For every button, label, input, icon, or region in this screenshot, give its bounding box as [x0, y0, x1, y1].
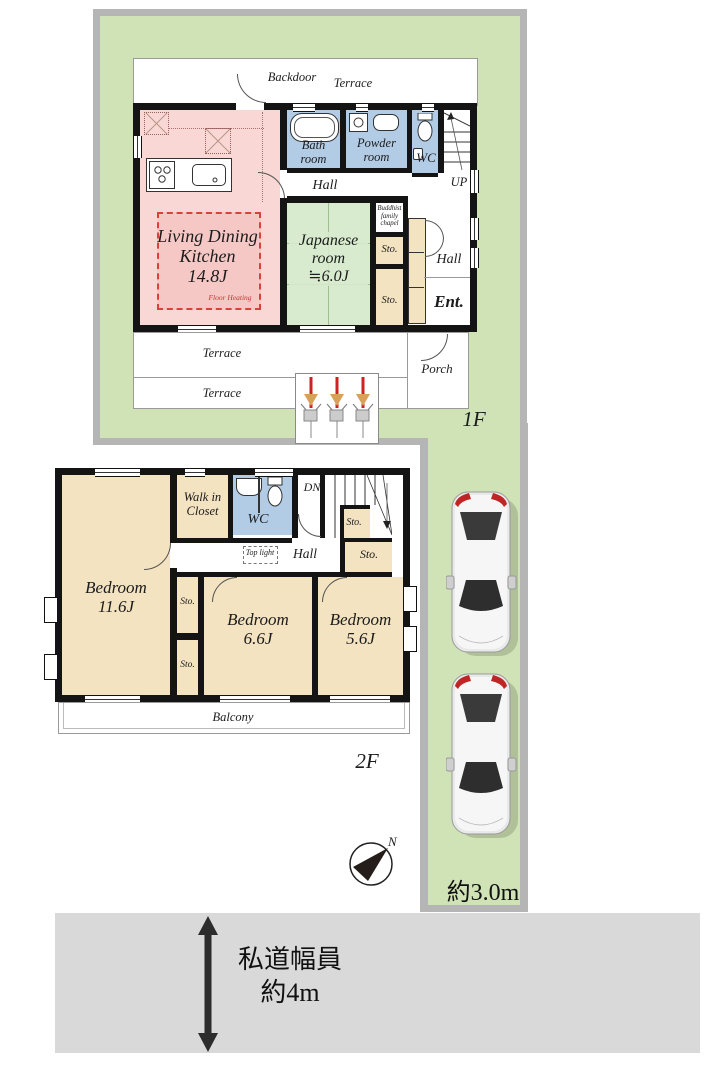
sink-icon	[192, 164, 226, 186]
room-bedroom1-label: Bedroom 11.6J	[70, 578, 162, 616]
wall	[280, 110, 287, 170]
floor-plan-page: 私道幅員 約4m 約3.0m Backdoor Terrace Living D…	[0, 0, 712, 1071]
wall	[340, 542, 345, 572]
room-bedroom2-name: Bedroom	[212, 610, 304, 629]
toilet-icon-2f	[266, 477, 284, 509]
hall-ent-divider	[424, 277, 470, 278]
room-bedroom3-size: 5.6J	[318, 629, 403, 648]
wall	[376, 264, 403, 269]
compass-icon: N	[345, 832, 403, 890]
bay-window	[403, 626, 417, 652]
window-mark	[470, 248, 479, 268]
bay-window	[44, 654, 58, 680]
stove-icon	[149, 161, 175, 189]
car-icon	[446, 670, 520, 842]
storage-2f-right-label: Sto.	[351, 548, 387, 561]
wall	[170, 568, 177, 695]
floor-heating-label: Floor Heating	[203, 294, 257, 302]
storage-1f-a-label: Sto.	[376, 244, 403, 256]
window-mark	[133, 136, 142, 158]
hall-closet-divider	[408, 287, 424, 288]
backdoor-opening	[236, 103, 264, 110]
wall	[412, 173, 438, 177]
window-mark	[356, 103, 368, 112]
storage-2f-b-label: Sto.	[175, 660, 200, 671]
wall	[177, 572, 392, 577]
terrace-mid	[133, 332, 409, 379]
wall	[340, 110, 346, 168]
room-bedroom1-size: 11.6J	[70, 597, 162, 616]
road-caption: 私道幅員 約4m	[195, 944, 385, 1009]
storage-1f-b-label: Sto.	[376, 295, 403, 307]
window-mark	[470, 170, 479, 193]
buddhist-chapel-label: Buddhist family chapel	[376, 205, 403, 228]
stairs-1f	[444, 110, 470, 173]
room-wic-label: Walk in Closet	[179, 490, 226, 518]
room-japanese-size: ≒6.0J	[289, 268, 368, 286]
room-japanese-label: Japanese room ≒6.0J	[289, 232, 368, 286]
car-icon	[446, 488, 520, 660]
window-mark	[470, 218, 479, 240]
toilet-icon-1f	[416, 113, 434, 143]
driveway-width-label: 約3.0m	[433, 872, 533, 907]
room-bedroom2-label: Bedroom 6.6J	[212, 610, 304, 648]
hall-closet-strip	[408, 218, 426, 324]
room-bedroom3-label: Bedroom 5.6J	[318, 610, 403, 648]
planter-box	[295, 373, 379, 444]
window-mark	[95, 468, 140, 477]
room-ldk-name: Living Dining Kitchen	[150, 226, 265, 266]
bay-window	[44, 597, 58, 623]
hall-2f-label: Hall	[284, 546, 326, 561]
entrance-label: Ent.	[426, 292, 472, 311]
top-light-label: Top light	[243, 549, 277, 558]
wall	[170, 475, 177, 543]
hall-1f-upper-label: Hall	[300, 178, 350, 194]
road-caption-line2: 約4m	[195, 977, 385, 1010]
terrace-low-label: Terrace	[190, 386, 254, 400]
kitchen-skylight-mark	[205, 128, 231, 154]
room-bath-label: Bath room	[289, 138, 338, 166]
terrace-top-label: Terrace	[318, 76, 388, 90]
porch-label: Porch	[410, 362, 464, 377]
hall-1f-right-label: Hall	[428, 252, 470, 268]
wall	[312, 577, 318, 695]
room-ldk-size: 14.8J	[150, 266, 265, 286]
room-powder-label: Powder room	[348, 136, 405, 164]
wall	[403, 196, 408, 325]
kitchen-dot-line	[168, 128, 264, 129]
room-wc-2f-label: WC	[238, 512, 278, 528]
room-bedroom1-name: Bedroom	[70, 578, 162, 597]
wall	[376, 232, 403, 237]
plant-icon	[353, 377, 373, 438]
plant-icon	[301, 377, 321, 438]
wall	[228, 475, 233, 538]
terrace-mid-label: Terrace	[190, 346, 254, 360]
wall	[438, 110, 444, 173]
storage-stairs-label: Sto.	[342, 517, 366, 528]
window-mark	[255, 468, 293, 477]
plant-icon	[327, 377, 347, 438]
bay-window	[403, 586, 417, 612]
wall	[198, 577, 204, 695]
hall-closet-divider	[408, 252, 424, 253]
road-caption-line1: 私道幅員	[195, 944, 385, 977]
wall	[287, 168, 407, 173]
room-wc-1f-label: WC	[413, 151, 439, 166]
room-japanese-name: Japanese room	[289, 232, 368, 268]
kitchen-hood-mark	[144, 112, 169, 135]
wall	[287, 196, 407, 203]
wall	[177, 633, 198, 640]
room-bedroom3-name: Bedroom	[318, 610, 403, 629]
floor1-tag: 1F	[452, 408, 496, 432]
vanity-sink-icon	[373, 114, 399, 131]
wall	[177, 538, 292, 543]
floor2-tag: 2F	[345, 750, 389, 774]
wall	[407, 110, 412, 173]
wall	[280, 198, 287, 325]
wall	[340, 538, 392, 542]
wall	[292, 475, 298, 538]
balcony-label: Balcony	[198, 710, 268, 724]
wc2f-partition	[258, 475, 260, 513]
compass-north-label: N	[387, 834, 398, 849]
room-ldk-label: Living Dining Kitchen 14.8J	[150, 226, 265, 286]
window-mark	[185, 468, 205, 477]
washer-icon	[349, 113, 368, 132]
window-mark	[422, 103, 434, 112]
storage-2f-a-label: Sto.	[175, 597, 200, 608]
room-bedroom2-size: 6.6J	[212, 629, 304, 648]
window-mark	[293, 103, 315, 112]
